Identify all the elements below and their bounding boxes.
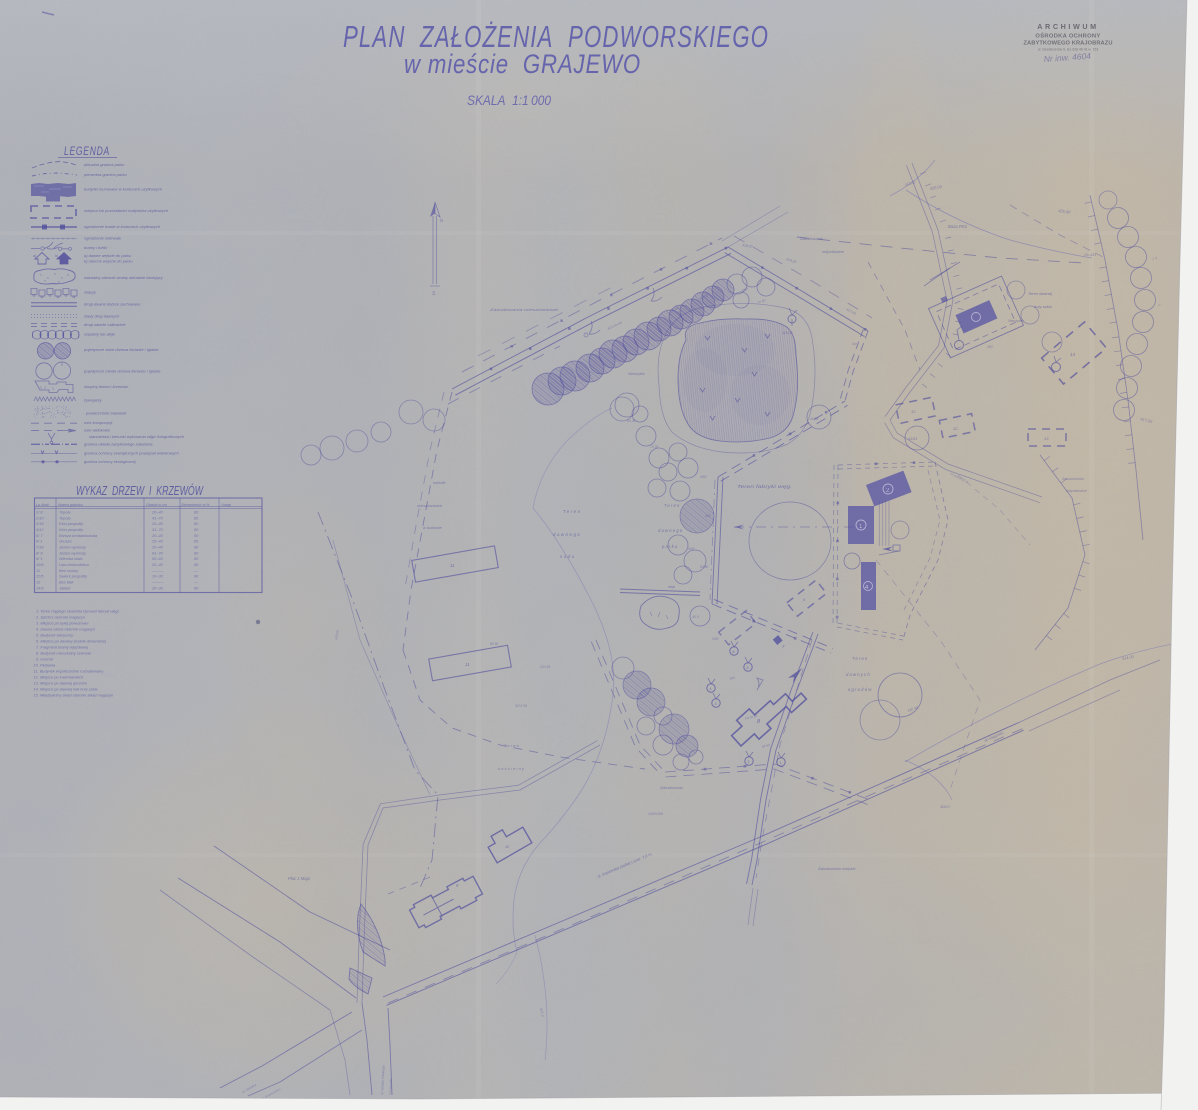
svg-text:Gk.431: Gk.431 — [1084, 253, 1096, 257]
svg-text:skarpy: skarpy — [84, 289, 97, 294]
svg-text:a) dawne wejście do parku: a) dawne wejście do parku — [84, 253, 132, 258]
svg-text:4/12: 4/12 — [36, 527, 44, 532]
svg-text:10. Plebania: 10. Plebania — [34, 663, 56, 668]
svg-text:4/II: 4/II — [852, 342, 857, 346]
svg-text:11: 11 — [36, 568, 40, 573]
svg-text:12/I 35: 12/I 35 — [540, 665, 550, 669]
svg-text:ZABYTKOWEGO KRAJOBRAZU: ZABYTKOWEGO KRAJOBRAZU — [1023, 41, 1112, 47]
svg-text:Zabudowania: Zabudowania — [799, 237, 823, 241]
svg-text:Klon pospolity: Klon pospolity — [59, 521, 84, 526]
svg-text:dawnego: dawnego — [553, 532, 581, 537]
svg-text:41–70: 41–70 — [152, 515, 164, 520]
svg-text:sadu: sadu — [560, 554, 576, 559]
svg-text:ślady dróg dawnych: ślady dróg dawnych — [84, 314, 120, 319]
svg-text:3/60: 3/60 — [712, 637, 719, 641]
svg-text:powierzchnie trawiaste: powierzchnie trawiaste — [85, 411, 127, 416]
svg-text:6. Miejsce po dawnej stodole: 6. Miejsce po dawnej stodole drewnianej — [36, 639, 106, 644]
svg-text:14: 14 — [1070, 352, 1076, 357]
svg-text:Zabudowania: Zabudowania — [1061, 477, 1084, 481]
svg-text:Nieużytek: Nieużytek — [1008, 319, 1024, 323]
svg-text:Teren dawnej: Teren dawnej — [1028, 291, 1052, 296]
svg-text:12: 12 — [953, 426, 958, 431]
svg-text:ARCHIWUM: ARCHIWUM — [1037, 22, 1099, 31]
svg-text:granica ochrony ekologicznej: granica ochrony ekologicznej — [84, 459, 136, 464]
svg-text:żywopłoty: żywopłoty — [83, 398, 103, 403]
svg-text:Baza PKS: Baza PKS — [948, 224, 967, 229]
svg-text:6/I 60: 6/I 60 — [700, 565, 708, 569]
svg-text:5: 5 — [747, 666, 749, 670]
svg-text:w budowie: w budowie — [423, 525, 443, 530]
svg-text:Obwód w cm: Obwód w cm — [146, 503, 167, 507]
svg-text:LEGENDA: LEGENDA — [64, 146, 110, 158]
svg-text:12/5: 12/5 — [36, 574, 44, 579]
svg-text:N: N — [440, 218, 443, 223]
svg-text:15. Międzyłeśny skład obecnie: 15. Międzyłeśny skład obecnie skład maga… — [34, 693, 114, 698]
svg-text:aleja: aleja — [668, 585, 675, 589]
svg-text:20–30: 20–30 — [151, 585, 164, 590]
svg-text:12: 12 — [911, 409, 916, 414]
svg-text:1: 1 — [780, 761, 782, 765]
svg-text:Uwagi: Uwagi — [221, 503, 231, 507]
svg-text:3/2 II 35: 3/2 II 35 — [515, 704, 527, 708]
svg-text:ogrodzenie nietrwałe: ogrodzenie nietrwałe — [84, 236, 122, 241]
svg-text:Zabudowania miejskie: Zabudowania miejskie — [817, 867, 856, 871]
svg-text:20–40: 20–40 — [151, 533, 164, 538]
svg-text:Świerk pospolity: Świerk pospolity — [59, 574, 88, 579]
svg-text:41–70: 41–70 — [152, 527, 164, 532]
svg-text:Teren: Teren — [852, 656, 869, 661]
svg-text:kościelny: kościelny — [498, 766, 525, 771]
svg-text:Teren: Teren — [563, 509, 582, 514]
svg-text:Bez czarny: Bez czarny — [59, 568, 79, 573]
svg-text:dawnego: dawnego — [658, 528, 683, 533]
svg-text:7. Fragment bramy wjazdowej: 7. Fragment bramy wjazdowej — [36, 645, 88, 650]
svg-text:9/III: 9/III — [705, 514, 711, 518]
svg-text:pierwotna granica parku: pierwotna granica parku — [83, 172, 127, 177]
svg-text:pojedyncze młode drzewa liścia: pojedyncze młode drzewa liściaste / igla… — [83, 368, 161, 373]
svg-text:b) obecne wejście do parku: b) obecne wejście do parku — [84, 259, 133, 264]
svg-text:1628/1308: 1628/1308 — [648, 812, 663, 816]
svg-text:Klon pospolity: Klon pospolity — [59, 527, 84, 532]
svg-text:dawnych: dawnych — [846, 672, 871, 677]
svg-text:skupiny drzew i krzewów: skupiny drzew i krzewów — [84, 384, 129, 389]
svg-text:Zabudowania: Zabudowania — [659, 786, 683, 790]
svg-text:18/I: 18/I — [987, 345, 993, 349]
svg-text:6/ 1: 6/ 1 — [36, 539, 43, 544]
svg-text:WYKAZ DRZEW I KRZEWÓW: WYKAZ DRZEW I KRZEWÓW — [76, 483, 204, 498]
svg-text:Brzoza brodawkowata: Brzoza brodawkowata — [59, 533, 98, 538]
svg-text:5/ 7: 5/ 7 — [36, 533, 43, 538]
svg-text:szpalery lub aleje: szpalery lub aleje — [84, 332, 116, 337]
svg-text:———: ——— — [151, 568, 164, 573]
svg-text:3/18: 3/18 — [36, 521, 44, 526]
svg-text:indywidualne: indywidualne — [1066, 489, 1087, 493]
svg-text:20–40: 20–40 — [151, 510, 164, 515]
svg-text:osie widokowe: osie widokowe — [84, 428, 111, 433]
svg-text:huty szkła: huty szkła — [1034, 304, 1053, 309]
svg-text:Jesion wyniosły: Jesion wyniosły — [58, 545, 87, 550]
svg-text:6: 6 — [733, 650, 735, 654]
svg-text:granica ochrony zewnętrznych p: granica ochrony zewnętrznych powiązań wi… — [84, 450, 179, 455]
svg-text:11: 11 — [450, 563, 455, 568]
svg-text:4. Dawna obora obecnie magazy: 4. Dawna obora obecnie magazyn — [36, 627, 95, 632]
svg-text:a): a) — [33, 254, 36, 258]
svg-text:1. Teren ciągłego skażenia dym: 1. Teren ciągłego skażenia dymami fabryk… — [36, 609, 120, 614]
svg-text:11: 11 — [465, 662, 470, 667]
svg-text:25–40: 25–40 — [151, 539, 164, 544]
svg-text:10/6: 10/6 — [36, 562, 44, 567]
svg-text:1/ 8: 1/ 8 — [36, 510, 43, 515]
svg-text:3. Miejsce po byłej powozowni: 3. Miejsce po byłej powozowni — [36, 621, 88, 626]
svg-text:14. Miejsce po dawnej hali hu: 14. Miejsce po dawnej hali huty szkła — [34, 687, 99, 692]
svg-text:OŚRODKA OCHRONY: OŚRODKA OCHRONY — [1035, 33, 1100, 40]
svg-text:2/10: 2/10 — [35, 515, 44, 520]
svg-text:10–30: 10–30 — [152, 574, 164, 579]
svg-text:parku: parku — [661, 544, 678, 549]
svg-text:4/60: 4/60 — [700, 475, 707, 479]
svg-text:8. Budynek mieszkalny czworak: 8. Budynek mieszkalny czworak — [36, 651, 92, 656]
svg-text:———: ——— — [151, 580, 164, 585]
svg-text:9. Kościół: 9. Kościół — [36, 657, 53, 662]
svg-text:9/ 1: 9/ 1 — [36, 556, 43, 561]
svg-text:Teren: Teren — [664, 503, 681, 508]
svg-text:Nazwa gatunku: Nazwa gatunku — [58, 503, 83, 507]
svg-text:Zabudowania mieszkaniowe: Zabudowania mieszkaniowe — [489, 307, 559, 312]
svg-text:Bez lilak: Bez lilak — [59, 580, 75, 585]
svg-text:Teren fabryki węg.: Teren fabryki węg. — [737, 484, 792, 489]
svg-text:indywidualne: indywidualne — [822, 250, 844, 254]
svg-text:ogrodów: ogrodów — [848, 687, 872, 692]
svg-text:12. Miejsce po inwentarskich: 12. Miejsce po inwentarskich — [34, 675, 84, 680]
svg-text:Jesion wyniosły: Jesion wyniosły — [58, 550, 87, 555]
svg-text:Nieużytek: Nieużytek — [628, 372, 646, 376]
svg-text:Wierzba biała: Wierzba biała — [59, 556, 83, 561]
svg-text:2. Spichrz obecnie magazyn: 2. Spichrz obecnie magazyn — [35, 615, 85, 620]
svg-text:13: 13 — [1044, 436, 1049, 441]
svg-text:naturalny zbiornik wodny aktua: naturalny zbiornik wodny aktualnie istni… — [84, 275, 164, 280]
svg-text:5/I 35: 5/I 35 — [627, 419, 635, 423]
svg-text:miejsca lub pozostałości budyn: miejsca lub pozostałości budynków użytko… — [84, 208, 169, 213]
svg-text:Topola: Topola — [59, 515, 71, 520]
svg-text:drogi zatarte całkowicie: drogi zatarte całkowicie — [84, 322, 126, 327]
svg-text:Plac 1 Maja: Plac 1 Maja — [288, 876, 311, 881]
svg-text:5. Budynek fabryczny: 5. Budynek fabryczny — [36, 633, 74, 638]
svg-text:20–40: 20–40 — [151, 521, 164, 526]
svg-text:Zdrowotność w %: Zdrowotność w % — [180, 503, 210, 507]
svg-text:Lp./ilość: Lp./ilość — [36, 503, 49, 507]
svg-text:8/ 8: 8/ 8 — [36, 550, 43, 555]
svg-text:b): b) — [55, 254, 58, 258]
svg-text:ogrodzenie trwałe w konturach: ogrodzenie trwałe w konturach użytkowych — [84, 224, 161, 229]
svg-text:418,00: 418,00 — [782, 331, 792, 335]
svg-text:8/I 60: 8/I 60 — [490, 642, 498, 646]
svg-text:50–60: 50–60 — [152, 556, 164, 561]
svg-text:Teren: Teren — [504, 743, 520, 748]
svg-text:3: 3 — [715, 702, 717, 706]
svg-text:osiedle: osiedle — [433, 480, 446, 485]
svg-text:7/I 35: 7/I 35 — [650, 445, 658, 449]
svg-text:bramy i furtki: bramy i furtki — [84, 245, 107, 250]
svg-text:14/5: 14/5 — [36, 585, 44, 590]
svg-text:Grusza: Grusza — [59, 539, 72, 544]
svg-text:Topola: Topola — [59, 510, 71, 515]
svg-text:408,0: 408,0 — [940, 805, 950, 809]
svg-text:granica układu zabytkowego zał: granica układu zabytkowego założenia — [84, 441, 153, 446]
svg-text:stanowiska i kierunki wykonani: stanowiska i kierunki wykonania zdjęć fo… — [89, 434, 185, 439]
svg-text:osie kompozycji: osie kompozycji — [84, 420, 112, 425]
svg-text:11. Budynek współcześnie rozbu: 11. Budynek współcześnie rozbudowany — [34, 669, 105, 674]
svg-text:2: 2 — [748, 760, 750, 764]
svg-text:budynki murowane w konturach u: budynki murowane w konturach użytkowych — [84, 186, 163, 191]
svg-text:aktualna granica parku: aktualna granica parku — [84, 162, 125, 167]
svg-text:—: — — [193, 580, 198, 585]
svg-text:—: — — [193, 568, 198, 573]
svg-text:61–70: 61–70 — [152, 550, 164, 555]
svg-text:mieszkaniowe: mieszkaniowe — [417, 503, 443, 508]
svg-text:Jabłoń: Jabłoń — [58, 585, 70, 590]
svg-text:w mieście GRAJEWO: w mieście GRAJEWO — [404, 49, 641, 79]
svg-text:20–40: 20–40 — [151, 562, 164, 567]
svg-text:20–40: 20–40 — [151, 545, 164, 550]
svg-text:7/18: 7/18 — [36, 545, 44, 550]
svg-text:13. Miejsce po dawnej gorzeln: 13. Miejsce po dawnej gorzelni — [34, 681, 87, 686]
svg-text:4/I 5: 4/I 5 — [692, 615, 699, 619]
svg-text:SKALA 1:1 000: SKALA 1:1 000 — [467, 93, 551, 108]
svg-text:5/60: 5/60 — [688, 547, 695, 551]
svg-text:Lipa drobnolistna: Lipa drobnolistna — [59, 562, 89, 567]
svg-text:drogi dawne dobrze zachowane: drogi dawne dobrze zachowane — [84, 301, 141, 306]
svg-text:pojedyncze stare drzewa liścia: pojedyncze stare drzewa liściaste / igla… — [83, 347, 159, 352]
svg-text:4: 4 — [710, 687, 712, 691]
